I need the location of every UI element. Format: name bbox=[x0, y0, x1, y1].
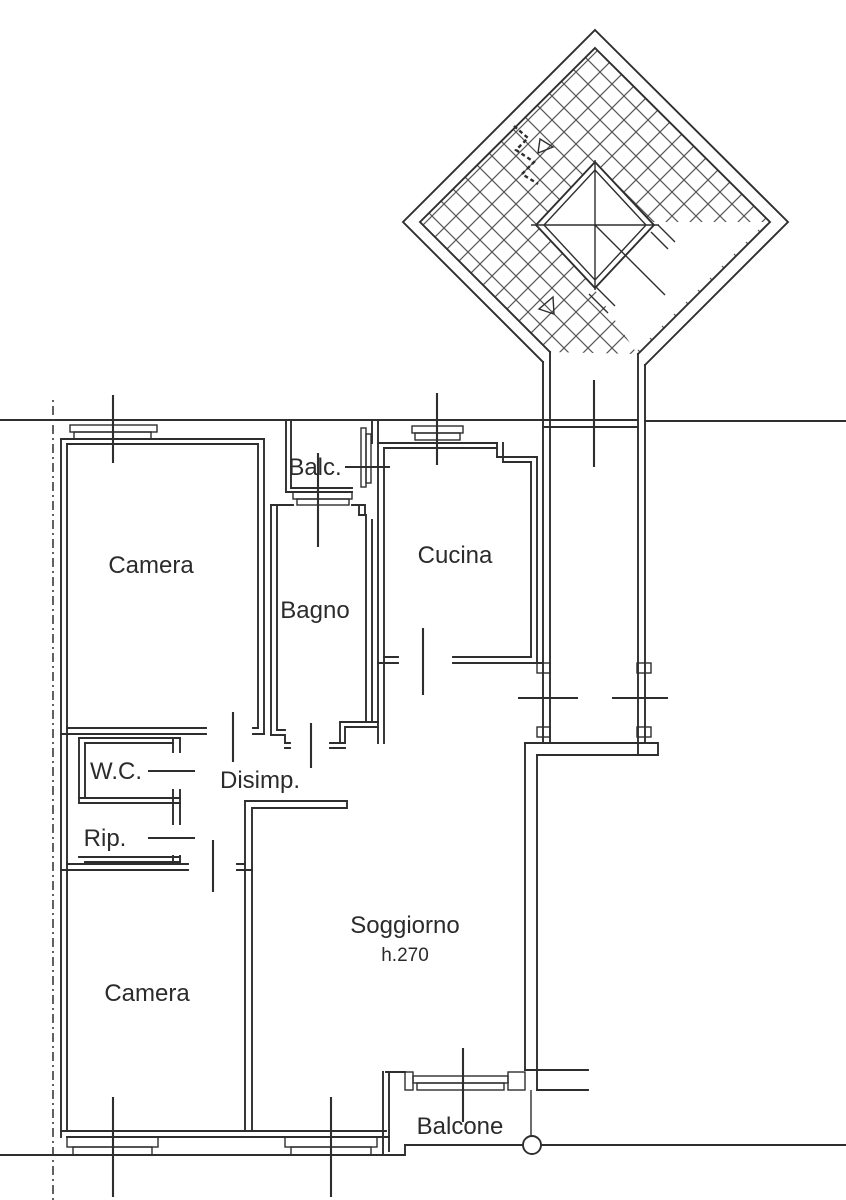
camera-bottom-label: Camera bbox=[104, 980, 190, 1007]
camera-top-label: Camera bbox=[108, 552, 194, 579]
disimp-label: Disimp. bbox=[220, 767, 300, 794]
cucina-label: Cucina bbox=[418, 542, 493, 569]
floor-plan-page: Camera Balc. Bagno Cucina W.C. Rip. Disi… bbox=[0, 0, 846, 1200]
soggiorno-south-window bbox=[285, 1097, 377, 1197]
floor-plan-drawing: Camera Balc. Bagno Cucina W.C. Rip. Disi… bbox=[0, 0, 846, 1200]
camera-top-window bbox=[70, 395, 157, 463]
soggiorno-balcone-walls bbox=[383, 743, 846, 1155]
site-reference-lines bbox=[0, 400, 846, 1200]
balcony-column-icon bbox=[523, 1136, 541, 1154]
soggiorno-height-label: h.270 bbox=[381, 945, 429, 966]
apartment-walls bbox=[61, 393, 846, 1197]
balcone-label: Balcone bbox=[417, 1113, 504, 1140]
soggiorno-balcone-window bbox=[413, 1048, 508, 1122]
balc-label: Balc. bbox=[288, 454, 341, 481]
rip-label: Rip. bbox=[84, 825, 127, 852]
camera-bottom-window bbox=[67, 1097, 158, 1197]
soggiorno-label: Soggiorno bbox=[350, 912, 459, 939]
wc-label: W.C. bbox=[90, 758, 142, 785]
bagno-label: Bagno bbox=[280, 597, 349, 624]
stairwell bbox=[403, 30, 788, 365]
cucina-window bbox=[412, 393, 463, 465]
room-labels: Camera Balc. Bagno Cucina W.C. Rip. Disi… bbox=[84, 454, 504, 1140]
stair-corridor bbox=[518, 352, 668, 755]
